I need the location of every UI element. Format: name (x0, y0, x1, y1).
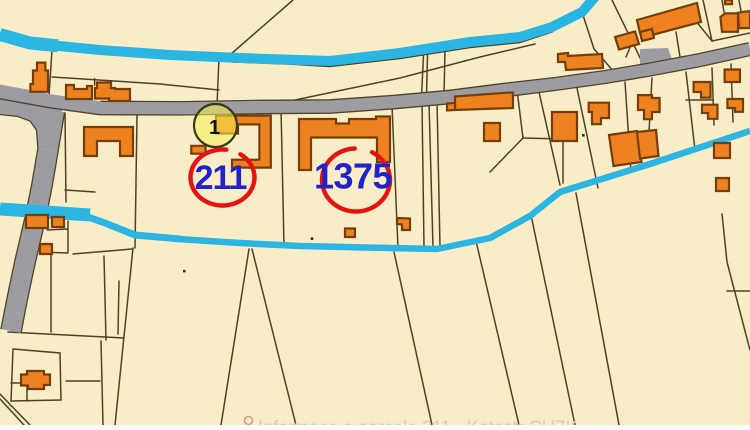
svg-text:211: 211 (195, 159, 247, 197)
svg-text:Informace o parcele 211 - Kat: Informace o parcele 211 - Katastr CUZK (258, 418, 578, 426)
svg-text:1375: 1375 (314, 156, 393, 197)
svg-text:1: 1 (209, 117, 220, 139)
